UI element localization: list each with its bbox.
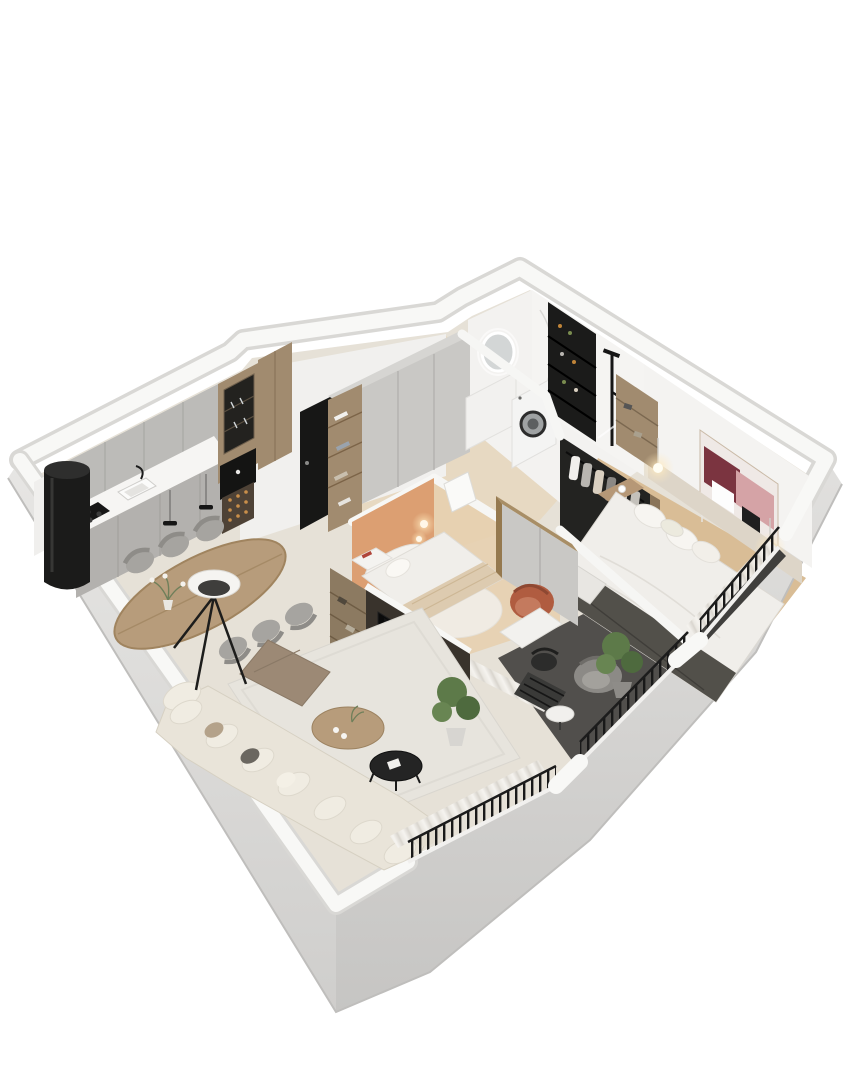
terrace-table (546, 706, 574, 722)
pendant-bulb (653, 463, 663, 473)
wall-lamp-bulb-2 (416, 536, 422, 542)
coffee-cup (618, 485, 625, 492)
door-handle (305, 461, 309, 465)
wall-lamp-bulb (420, 520, 428, 528)
burner (96, 511, 101, 516)
cup (341, 733, 347, 739)
washer-drum (528, 419, 539, 430)
desk-chair (531, 653, 557, 671)
washer-dial (518, 396, 521, 399)
cup (333, 727, 339, 733)
hall-wardrobe-open-shelves (328, 384, 362, 532)
floor-plan-render (0, 0, 844, 1080)
coffee-table-wood (312, 707, 384, 749)
black-cylinder-top (44, 461, 90, 479)
floor-plan-stage (0, 0, 844, 1080)
wardrobe2-side (496, 496, 502, 578)
coffee-machine-dial (236, 470, 240, 474)
